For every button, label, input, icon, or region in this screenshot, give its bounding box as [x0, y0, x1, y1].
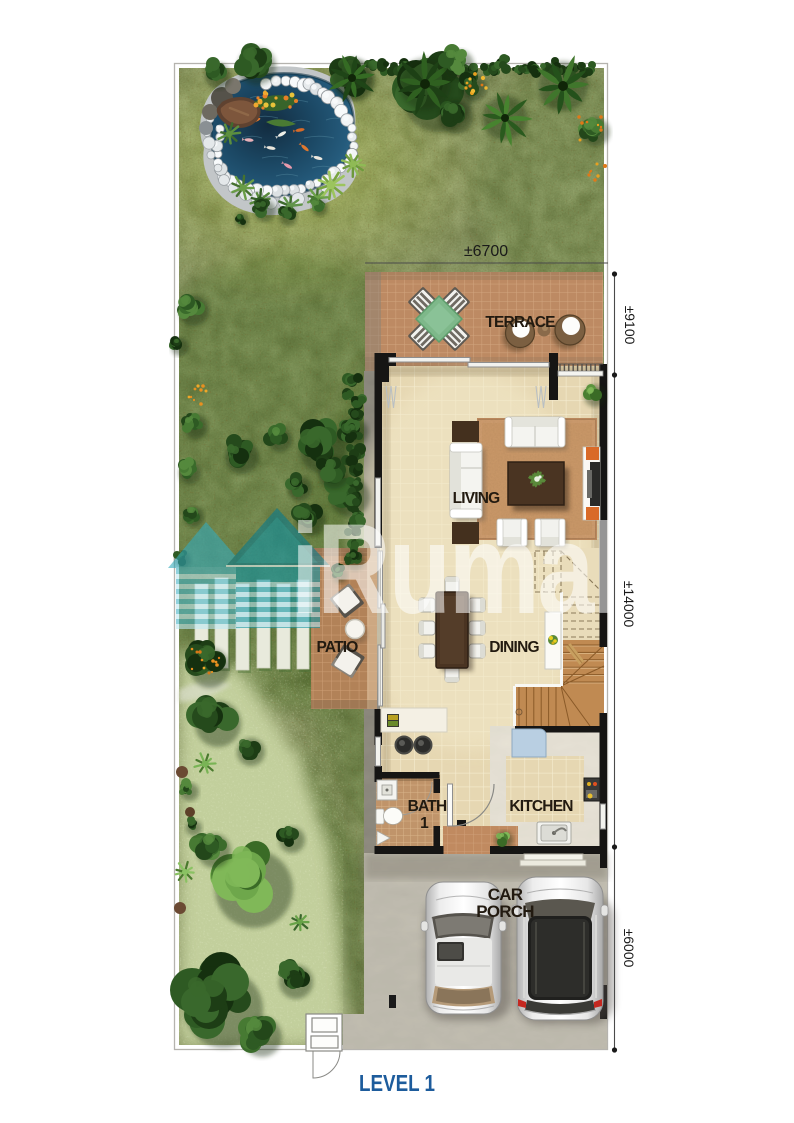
svg-text:DINING: DINING — [489, 639, 539, 656]
svg-text:LEVEL 1: LEVEL 1 — [359, 1070, 435, 1096]
svg-text:±6700: ±6700 — [464, 243, 508, 260]
svg-text:PORCH: PORCH — [476, 902, 534, 921]
svg-text:PATIO: PATIO — [316, 639, 358, 656]
svg-text:TERRACE: TERRACE — [485, 314, 555, 331]
svg-text:±6000: ±6000 — [621, 929, 637, 968]
svg-text:KITCHEN: KITCHEN — [509, 798, 573, 815]
svg-text:±14000: ±14000 — [621, 581, 637, 628]
svg-text:±9100: ±9100 — [622, 306, 638, 345]
svg-text:1: 1 — [420, 815, 429, 832]
svg-text:BATH: BATH — [408, 798, 447, 815]
svg-text:LIVING: LIVING — [453, 490, 501, 507]
svg-text:iRumah: iRumah — [291, 497, 652, 641]
